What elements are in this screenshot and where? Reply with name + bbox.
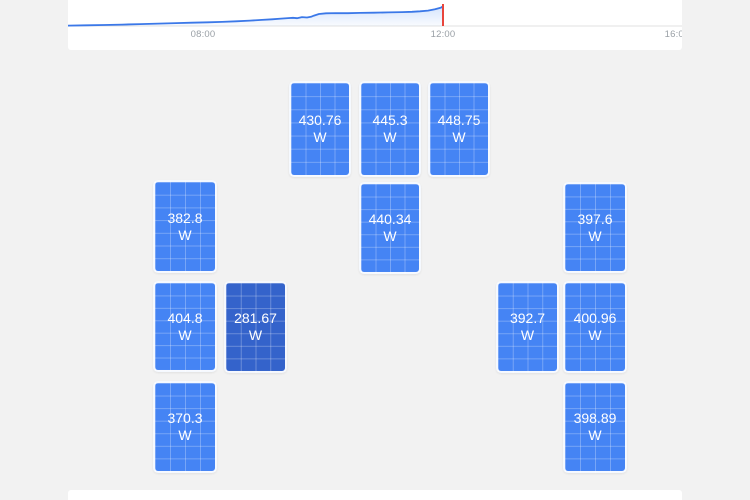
panel-power-unit: W [178, 427, 191, 444]
panel-power-value: 397.6 [577, 211, 612, 228]
panel-power-value: 448.75 [438, 112, 481, 129]
solar-panel[interactable]: 370.3W [153, 381, 217, 473]
solar-panel[interactable]: 392.7W [496, 281, 559, 373]
next-section-card [68, 490, 682, 500]
panel-power-value: 400.96 [574, 310, 617, 327]
panel-power-unit: W [383, 228, 396, 245]
solar-panel[interactable]: 382.8W [153, 180, 217, 273]
panel-power-unit: W [249, 327, 262, 344]
panel-power-unit: W [178, 327, 191, 344]
panel-power-value: 445.3 [372, 112, 407, 129]
panel-power-value: 281.67 [234, 310, 277, 327]
solar-panel[interactable]: 397.6W [563, 182, 627, 273]
panel-power-unit: W [383, 129, 396, 146]
panel-power-value: 370.3 [167, 410, 202, 427]
panel-power-value: 430.76 [299, 112, 342, 129]
solar-panel[interactable]: 281.67W [224, 281, 287, 373]
panel-power-unit: W [588, 427, 601, 444]
solar-panel[interactable]: 398.89W [563, 381, 627, 473]
panel-power-unit: W [521, 327, 534, 344]
panel-power-value: 392.7 [510, 310, 545, 327]
panel-power-unit: W [178, 227, 191, 244]
solar-panel[interactable]: 440.34W [359, 182, 421, 274]
time-axis-label: 16:00 [665, 29, 682, 40]
panel-power-unit: W [588, 228, 601, 245]
solar-panel[interactable]: 448.75W [428, 81, 490, 177]
production-chart[interactable] [68, 0, 682, 50]
production-chart-card: 08:0012:0016:00 [68, 0, 682, 50]
solar-panel[interactable]: 404.8W [153, 281, 217, 372]
panel-power-value: 440.34 [369, 211, 412, 228]
solar-array-layout: 430.76W445.3W448.75W440.34W382.8W404.8W2… [0, 50, 750, 490]
solar-panel[interactable]: 400.96W [563, 281, 627, 373]
panel-power-value: 404.8 [167, 310, 202, 327]
solar-panel[interactable]: 430.76W [289, 81, 351, 177]
time-axis-label: 08:00 [191, 29, 216, 40]
panel-power-unit: W [452, 129, 465, 146]
panel-power-value: 398.89 [574, 410, 617, 427]
solar-panel[interactable]: 445.3W [359, 81, 421, 177]
panel-power-unit: W [313, 129, 326, 146]
panel-power-unit: W [588, 327, 601, 344]
time-axis-label: 12:00 [431, 29, 456, 40]
production-area-fill [68, 6, 443, 26]
panel-power-value: 382.8 [167, 210, 202, 227]
solar-monitoring-page: 08:0012:0016:00 430.76W445.3W448.75W440.… [0, 0, 750, 500]
